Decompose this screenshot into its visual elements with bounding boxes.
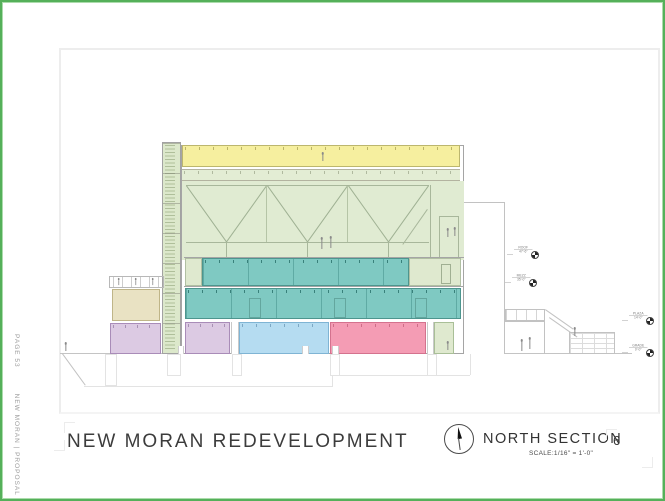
person-figure [445,341,450,350]
walkway-ticks [184,171,458,174]
door-outline [334,298,346,318]
foundation-pier [167,354,181,376]
stair-tower [162,142,181,354]
datum-icon [529,279,537,287]
column-gap [231,322,239,354]
annex-room-tan [112,289,160,321]
section-title: NORTH SECTION [483,431,622,447]
wall-beyond [464,202,505,354]
hopper-separator [347,186,348,243]
door-outline [441,264,451,284]
foundation-pier [330,354,340,376]
person-figure [63,342,68,351]
hopper-vee [267,186,348,243]
page-number: 6 [613,433,620,448]
footing-notch [332,346,339,354]
foundation-upper-line [332,375,470,376]
annex-room-lavender [110,323,161,354]
foundation-pier [105,354,117,386]
hall-lobby-wall [430,185,431,260]
hopper-separator [266,186,267,243]
person-figure [319,237,324,249]
person-figure [117,278,121,285]
footing-notch [302,346,309,354]
ground-room-green [434,322,454,354]
ground-room-pink [330,322,426,354]
door-outline [415,298,427,318]
footing-notch [178,346,184,354]
foundation-pier [427,354,437,376]
person-figure [134,278,138,285]
proposal-page: PAGE 53NEW MORAN | PROPOSAL [0,0,665,501]
person-figure [328,236,333,248]
hopper-vee [186,186,267,243]
guide-corner [54,440,65,451]
plaza-guardrail [505,309,545,322]
elevation-marker: GRADE0'-0" [622,347,656,357]
building-section-drawing: ROOF47'-6" MEZZ35'-0" PLAZA14'-0" GRADE0… [2,2,665,422]
floor-line-lower [184,286,464,287]
stair-railing [545,309,573,329]
upper-teal-floor [202,258,409,286]
green-bay-right [409,258,461,286]
person-figure [445,228,450,237]
guide-corner [642,457,653,468]
column-gap [427,322,434,354]
ground-room-blue [239,322,329,354]
green-bay-left [185,258,202,286]
walkway-band [182,169,460,181]
person-figure [527,337,532,349]
elevation-marker: MEZZ35'-0" [505,277,539,287]
person-figure [572,327,577,336]
datum-icon [646,349,654,357]
elevation-marker: PLAZA14'-0" [622,315,656,325]
person-figure [452,227,457,236]
compass-tail [458,438,461,450]
foundation-pier [232,354,242,376]
roof-mullion-ticks [185,147,457,150]
foundation-bottom-line [84,386,332,387]
foundation-right-line [470,354,471,375]
foundation-slope-line [62,353,86,385]
hopper-vee [348,186,429,243]
door-outline [249,298,261,318]
ground-room-lavender [185,322,230,354]
person-figure [151,278,155,285]
datum-icon [531,251,539,259]
north-compass-icon [444,424,474,454]
person-figure [519,339,524,351]
person-figure [320,152,325,161]
elevation-marker: ROOF47'-6" [507,249,541,259]
plaza-wall [505,322,545,354]
foundation-step-line [332,375,333,387]
page-title: NEW MORAN REDEVELOPMENT [67,431,409,453]
grain-hoppers [186,185,429,243]
datum-icon [646,317,654,325]
scale-label: SCALE:1/16" = 1'-0" [529,450,593,457]
elevator-shaft [439,216,459,259]
